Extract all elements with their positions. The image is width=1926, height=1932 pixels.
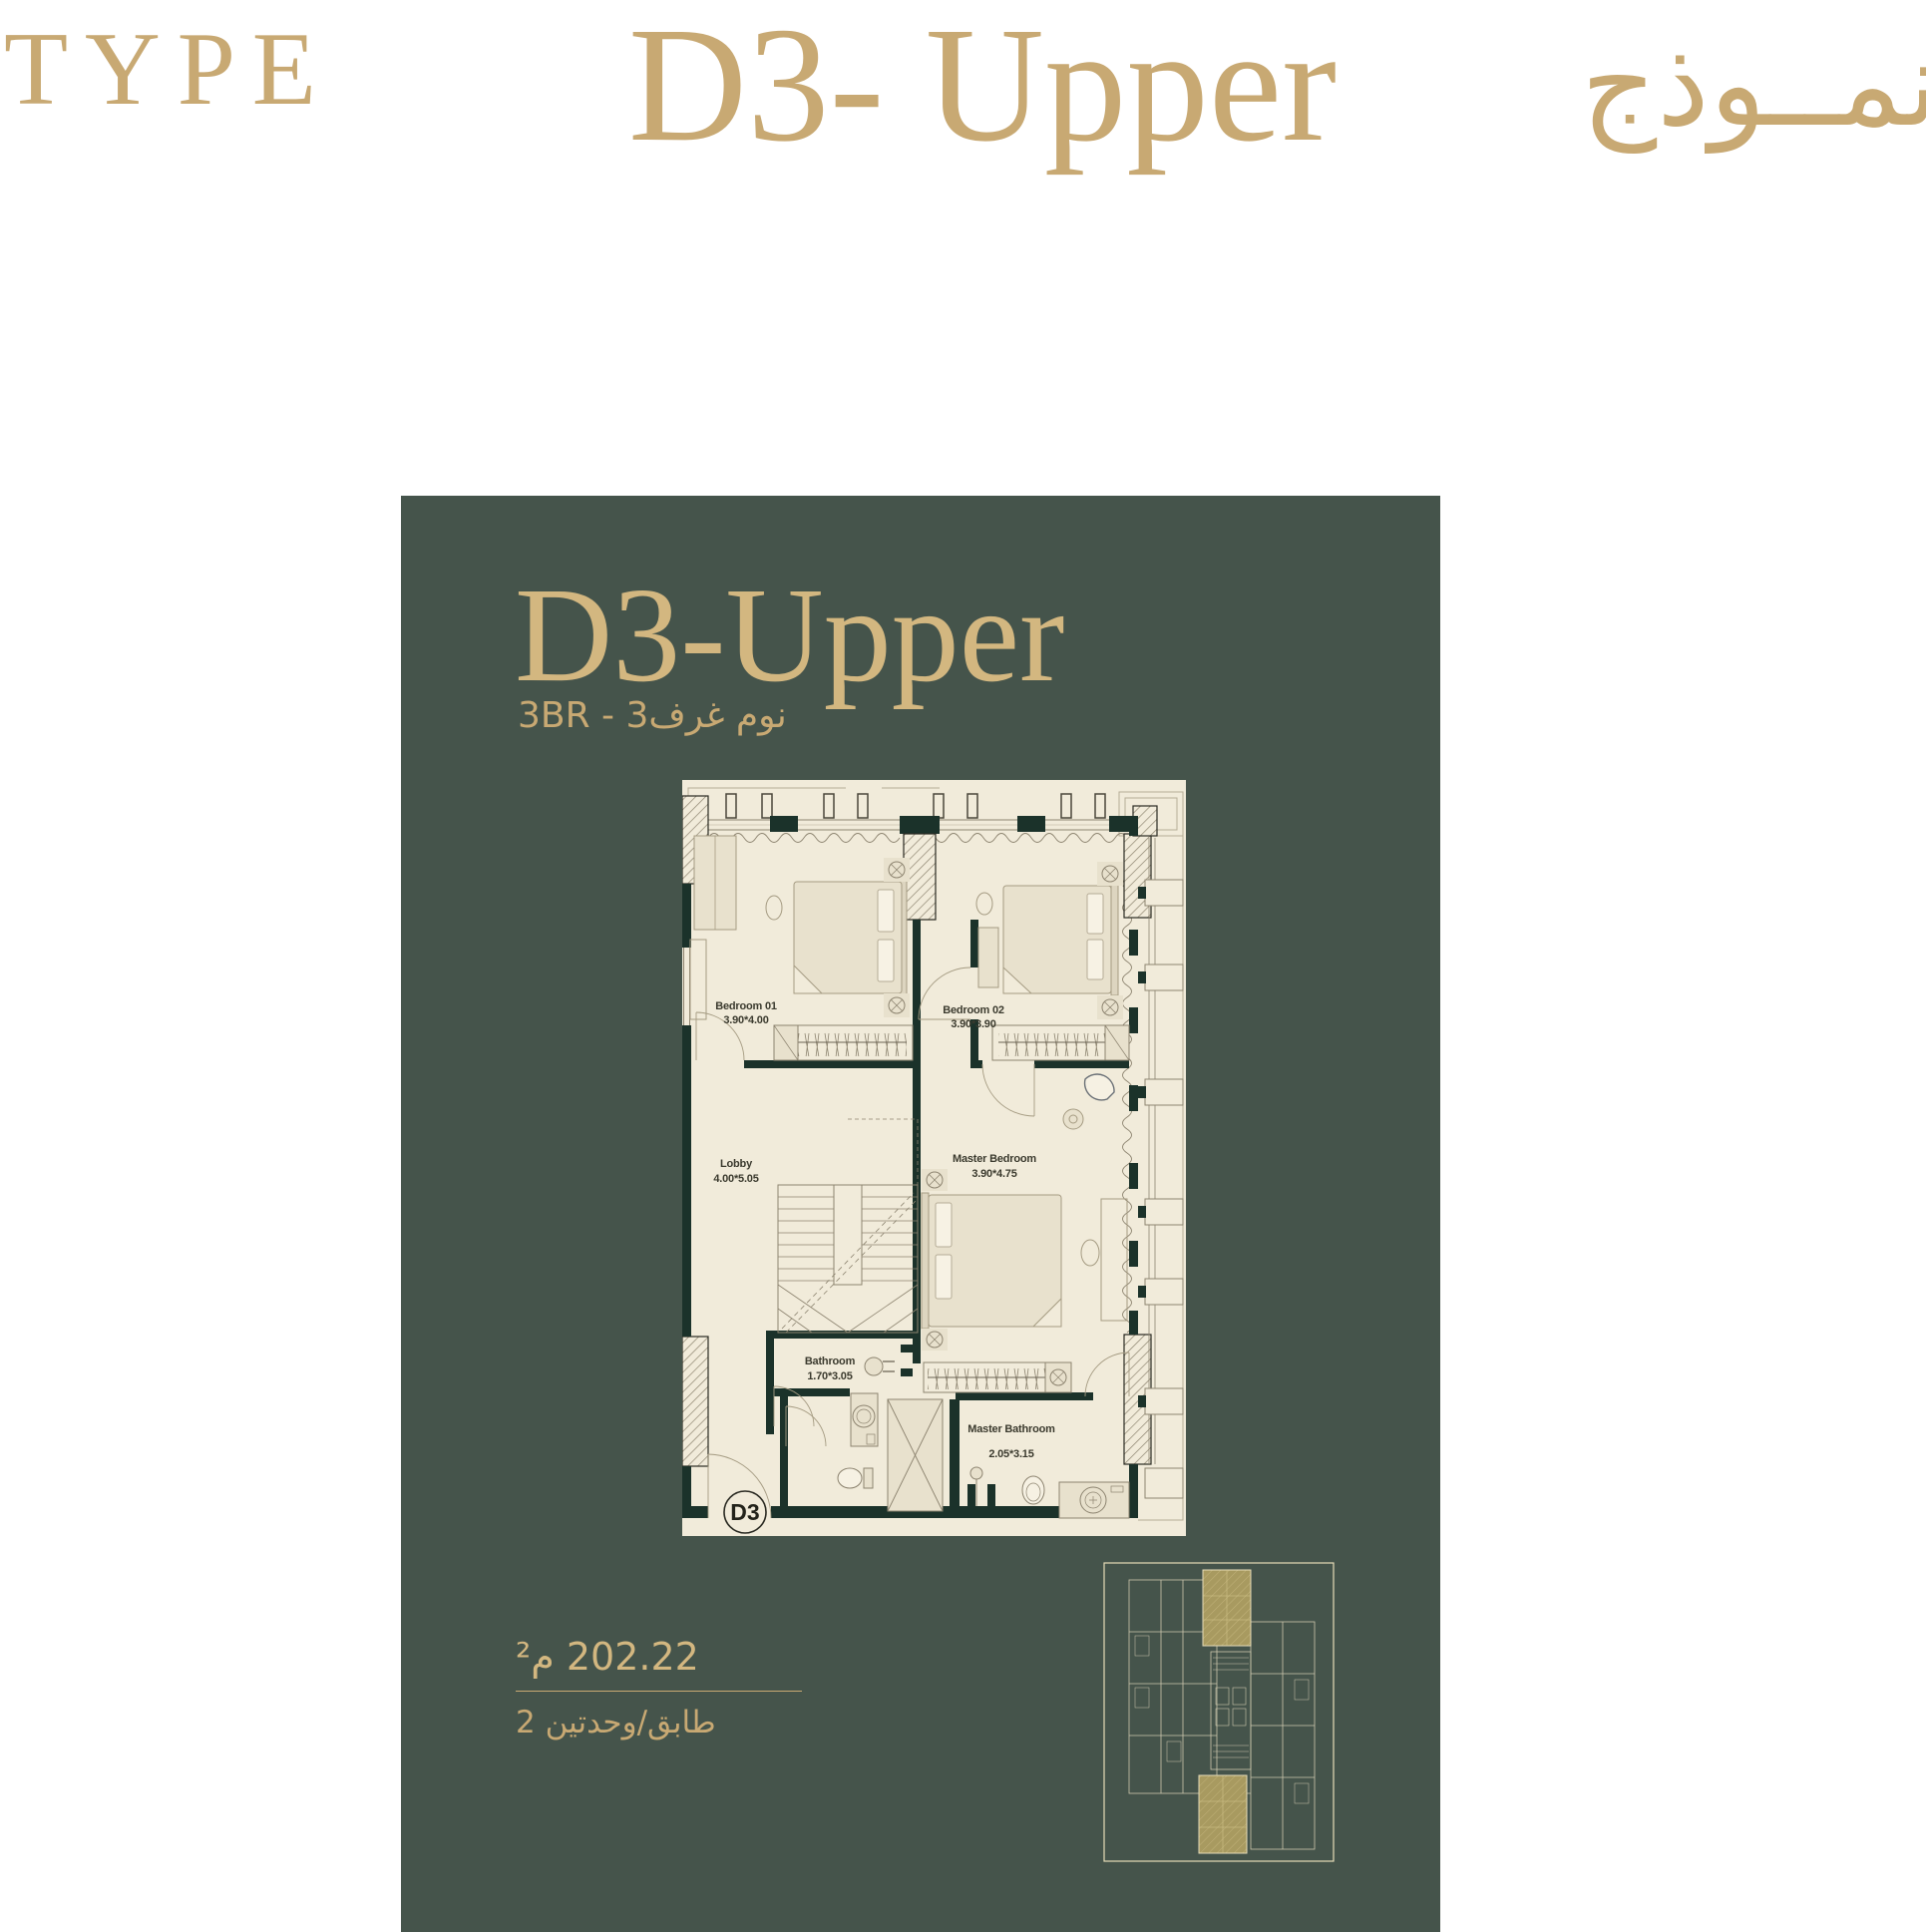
room-dims-bedroom02: 3.90*3.90 [951, 1018, 995, 1030]
area-value: 202.22 م² [516, 1636, 802, 1680]
page-title: D3- Upper [628, 2, 1337, 167]
area-block: 202.22 م² 2 وحدتين‎/‎طابق [516, 1636, 802, 1741]
units-per-floor: 2 وحدتين‎/‎طابق [516, 1705, 802, 1741]
duct-box [888, 1399, 943, 1511]
room-dims-bedroom01: 3.90*4.00 [723, 1014, 768, 1026]
room-dims-lobby: 4.00*5.05 [713, 1173, 758, 1185]
room-label-bedroom01: Bedroom 01 [715, 1000, 777, 1012]
room-label-master-bathroom: Master Bathroom [967, 1423, 1055, 1435]
unit-subtitle: 3BR - 3غرف‎ نوم [518, 693, 787, 738]
page-title-arabic: نمــوذج [1581, 14, 1926, 156]
key-plan-drawing [1099, 1556, 1339, 1868]
unit-badge: D3 [724, 1491, 766, 1533]
divider-line [516, 1691, 802, 1692]
unit-badge-label: D3 [730, 1499, 759, 1525]
key-plan [1099, 1556, 1339, 1868]
room-dims-master-bedroom: 3.90*4.75 [971, 1168, 1016, 1180]
type-label: TYPE [4, 16, 333, 121]
room-dims-master-bathroom: 2.05*3.15 [988, 1448, 1033, 1460]
room-label-bedroom02: Bedroom 02 [943, 1004, 1004, 1016]
room-label-lobby: Lobby [720, 1158, 753, 1170]
floorplan-drawing: Bedroom 01 3.90*4.00 Bedroom 02 3.90*3.9… [682, 780, 1186, 1536]
key-plan-highlighted-units [1199, 1570, 1251, 1853]
room-label-bathroom: Bathroom [805, 1355, 856, 1367]
room-label-master-bedroom: Master Bedroom [953, 1153, 1036, 1165]
floorplan: Bedroom 01 3.90*4.00 Bedroom 02 3.90*3.9… [682, 780, 1186, 1536]
room-dims-bathroom: 1.70*3.05 [807, 1370, 852, 1382]
brochure-page: TYPE D3- Upper نمــوذج D3-Upper 3BR - 3غ… [0, 0, 1926, 1932]
unit-title: D3-Upper [515, 568, 1064, 703]
